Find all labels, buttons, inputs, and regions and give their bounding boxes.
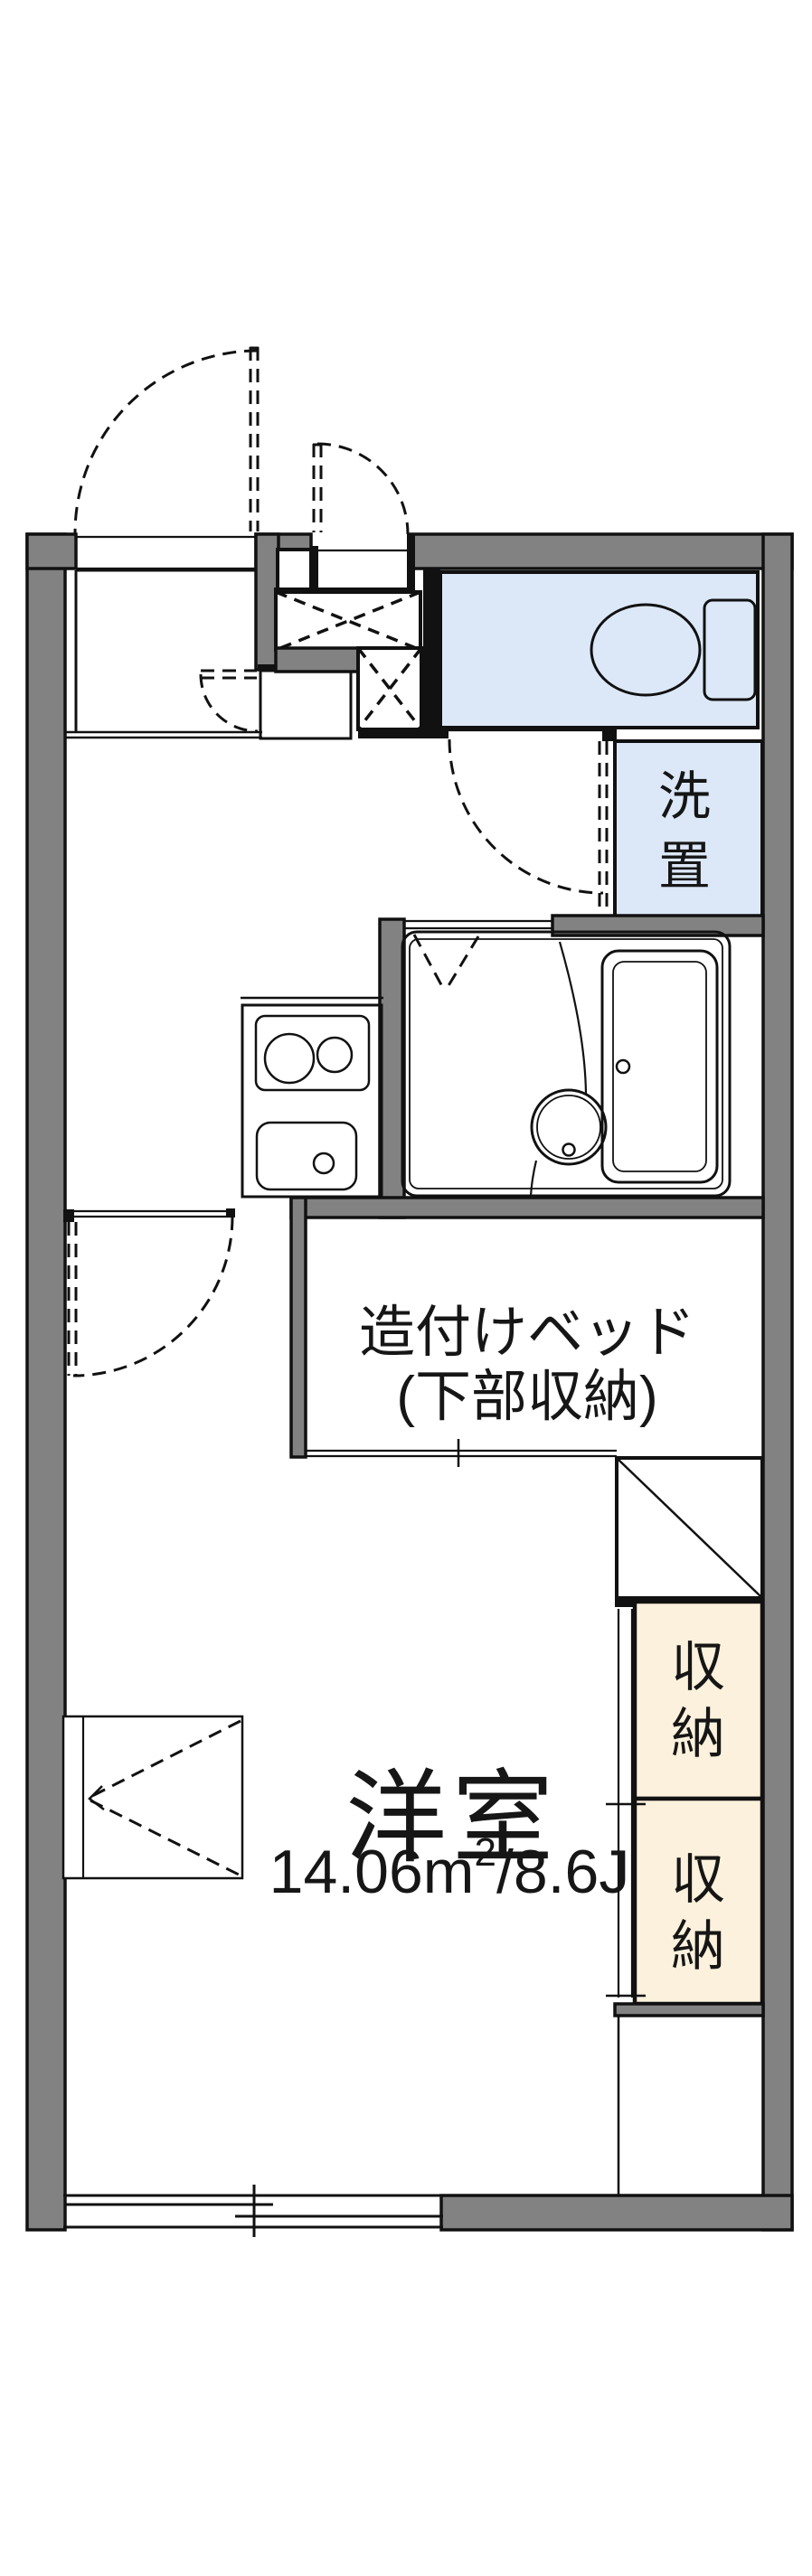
bathroom xyxy=(380,916,763,1217)
room-door-jamb-left xyxy=(63,1209,74,1222)
laundry-label-line2: 置 xyxy=(658,837,711,896)
room-door-jamb-right xyxy=(226,1208,235,1217)
laundry-label-line1: 洗 xyxy=(658,767,711,826)
room-door-swing-icon xyxy=(73,1217,232,1376)
bed-top-wall xyxy=(291,1198,763,1217)
room-area-prefix: 14.06m xyxy=(269,1838,475,1906)
ps-nook-left-jamb xyxy=(311,546,318,591)
ps-pocket xyxy=(278,550,311,589)
shoe-cabinet xyxy=(260,671,351,738)
closet1-label-line1: 収 xyxy=(671,1637,725,1697)
burner-large-icon xyxy=(265,1034,314,1083)
toilet-bottom-wall-left xyxy=(358,728,448,738)
shower-partition-curve xyxy=(560,942,586,1094)
room-area-suffix: /8.6J xyxy=(496,1838,629,1906)
toilet-bottom-wall-right xyxy=(602,728,617,741)
wall-right xyxy=(763,534,792,2230)
bath-folding-door-icon2 xyxy=(445,936,478,992)
ps-door-swing-icon xyxy=(317,444,408,534)
bed-label-line1: 造付けベッド xyxy=(359,1302,695,1364)
ps-nook-right-jamb xyxy=(407,534,415,595)
wash-basin-drain-dot xyxy=(563,1144,575,1156)
ps-nook xyxy=(318,539,407,588)
sink-drain-icon xyxy=(314,1153,334,1173)
toilet-left-wall xyxy=(423,569,440,731)
wall-top-right-segment xyxy=(409,534,792,569)
kitchen xyxy=(241,998,383,1197)
bathtub-inner xyxy=(613,962,706,1171)
wall-bottom xyxy=(441,2195,792,2230)
room-area-sup: 2 xyxy=(474,1830,496,1875)
floorplan-svg: 洗 置 xyxy=(0,0,812,2576)
floorplan-page: 洗 置 xyxy=(0,0,812,2576)
closet-bottom-band xyxy=(615,2004,763,2016)
closet2-label-line2: 納 xyxy=(671,1916,725,1977)
entrance-door xyxy=(75,347,259,569)
toilet-door-swing-icon xyxy=(449,739,603,893)
bottom-sliding-window xyxy=(63,2185,443,2237)
bed-left-wall xyxy=(291,1198,306,1457)
main-room-door xyxy=(63,1208,235,1376)
kitchen-unit xyxy=(242,1005,382,1197)
ps-door xyxy=(313,444,408,534)
bath-folding-door-icon xyxy=(414,935,445,992)
bathroom-left-wall xyxy=(380,919,404,1217)
unit-bath-panel-inner xyxy=(410,939,722,1189)
burner-small-icon xyxy=(317,1038,352,1072)
room-area-label: 14.06m2/8.6J xyxy=(269,1830,630,1906)
wash-basin-icon xyxy=(532,1090,606,1164)
closet-1 xyxy=(635,1602,762,1799)
unit-bath-panel xyxy=(402,932,730,1196)
kitchen-sink-icon xyxy=(257,1123,356,1189)
ps-gray-filler xyxy=(276,648,358,672)
pipe-space-area xyxy=(274,534,421,729)
closet1-label-line2: 納 xyxy=(671,1704,725,1764)
closet2-label-line1: 収 xyxy=(671,1849,725,1910)
wall-left xyxy=(27,534,65,2230)
bed-label-line2: (下部収納) xyxy=(396,1366,657,1428)
entrance-door-swing-icon xyxy=(75,351,258,533)
shower-partition-curve2 xyxy=(531,1161,536,1196)
bathtub-handle-dot xyxy=(617,1060,629,1073)
bathtub-icon xyxy=(602,951,717,1182)
wash-basin-inner xyxy=(537,1095,600,1159)
built-in-bed-area: 造付けベッド (下部収納) xyxy=(291,1198,763,1467)
laundry-area: 洗 置 xyxy=(615,741,762,917)
closet-column: 収 納 収 納 xyxy=(606,1458,763,2195)
main-room: 洋室 14.06m2/8.6J xyxy=(63,1716,629,1906)
shoe-cabinet-door-swing-icon xyxy=(201,674,258,731)
toilet-floor xyxy=(440,572,758,728)
wall-top-left-segment xyxy=(27,534,76,569)
